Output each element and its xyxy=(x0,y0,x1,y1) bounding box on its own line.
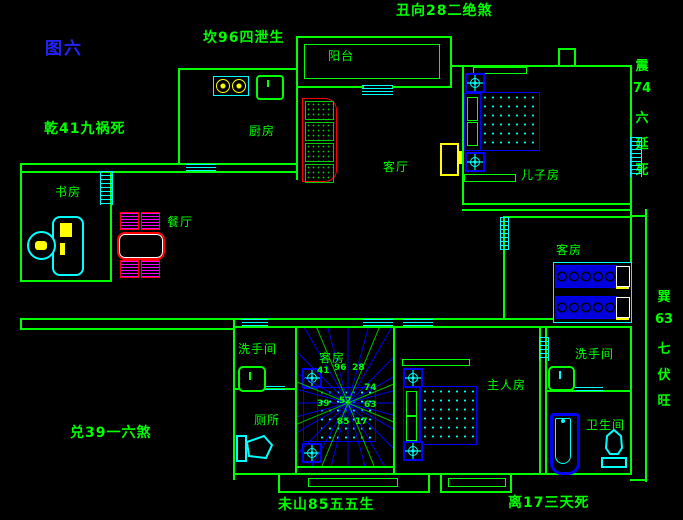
annotation-southwest: 未山85五五生 xyxy=(278,498,374,513)
wall-outer-right-bottom xyxy=(630,479,647,481)
study-desk xyxy=(52,216,84,276)
threshold2-bottom xyxy=(440,491,512,493)
wall-notch-top xyxy=(558,48,576,50)
compass-number: 63 xyxy=(364,401,377,410)
dining-chair xyxy=(141,260,160,278)
room-label-washroom-left: 洗手间 xyxy=(238,343,277,356)
wall-notch-right xyxy=(574,48,576,67)
sofa xyxy=(302,98,337,182)
bathtub-inner xyxy=(555,418,571,464)
window-guest-left xyxy=(500,217,509,250)
sofa-cushion xyxy=(305,122,334,141)
guest-bed-footline xyxy=(616,287,629,289)
guest-bed-pillow xyxy=(616,297,630,318)
kitchen-sink xyxy=(256,75,284,100)
tv-mount xyxy=(457,151,462,164)
room-label-dining: 餐厅 xyxy=(167,216,193,229)
washroom-right-sink xyxy=(548,366,575,391)
wall-guest-top xyxy=(503,216,632,218)
stair-room: 客房 41 96 28 74 39 52 63 85 17 xyxy=(297,328,393,466)
master-bed-pillow xyxy=(406,391,417,416)
bathtub-drain-icon xyxy=(561,419,565,423)
toilet-right-icon xyxy=(598,428,630,472)
compass-number: 17 xyxy=(355,418,368,427)
room-label-toilet-left: 厕所 xyxy=(254,414,280,427)
wall-kitchen-bottom-inner xyxy=(20,171,298,173)
dining-chair xyxy=(120,260,139,278)
stove-burner-icon xyxy=(232,79,246,93)
annotation-northeast: 丑向28二绝煞 xyxy=(396,4,492,19)
desk-monitor-icon xyxy=(60,223,72,237)
room-label-study: 书房 xyxy=(55,186,81,199)
annotation-south: 离17三天死 xyxy=(508,496,589,511)
wall-corridor-left-cap xyxy=(20,318,22,330)
study-chair-seat xyxy=(35,241,47,250)
wall-study-left xyxy=(20,163,22,282)
master-bed-pillow xyxy=(406,416,417,441)
guest-bed-footline xyxy=(616,318,629,320)
wall-kitchen-left xyxy=(178,68,180,165)
sofa-cushion xyxy=(305,143,334,162)
threshold1-step xyxy=(308,478,398,487)
nightstand-lamp-icon xyxy=(403,441,423,461)
stove-burner-icon xyxy=(216,79,230,93)
figure-title: 图六 xyxy=(45,34,83,59)
compass-number: 41 xyxy=(317,367,330,376)
door-master xyxy=(403,319,433,327)
guest-bed-pillow xyxy=(616,266,630,287)
wall-leftwing-left xyxy=(233,318,235,480)
wall-balcony-inner xyxy=(304,44,440,79)
compass-number: 74 xyxy=(364,384,377,393)
threshold2-left xyxy=(440,473,442,491)
room-label-master: 主人房 xyxy=(487,379,526,392)
sons-bed-pillow xyxy=(467,97,478,121)
nightstand-lamp-icon xyxy=(465,73,485,93)
annotation-southeast: 巽 63 七 伏 旺 xyxy=(652,286,676,416)
room-label-kitchen: 厨房 xyxy=(249,125,275,138)
sink-tap-icon xyxy=(267,80,269,87)
door-washroom-left xyxy=(242,319,268,327)
threshold1-left xyxy=(278,473,280,491)
wall-corridor-left-inner xyxy=(20,328,233,330)
window-sons-room xyxy=(630,137,642,177)
toilet-left-icon xyxy=(236,432,276,464)
annotation-north: 坎96四泄生 xyxy=(203,31,284,46)
washroom-left-sink xyxy=(238,366,266,392)
sons-bed-pillow xyxy=(467,122,478,146)
compass-number: 96 xyxy=(334,364,347,373)
wall-balcony-bottom-right xyxy=(392,86,452,88)
wall-outer-right xyxy=(645,209,647,482)
compass-number: 85 xyxy=(337,418,350,427)
threshold1-bottom xyxy=(278,491,430,493)
floor-plan: 图六 坎96四泄生 丑向28二绝煞 乾41九祸死 兑39一六煞 未山85五五生 … xyxy=(0,0,683,520)
sink-tap-icon xyxy=(559,371,561,379)
wall-balcony-bottom-left xyxy=(296,86,364,88)
sofa-cushion xyxy=(305,101,334,120)
wall-stair-bottom xyxy=(297,466,395,468)
wall-sons-bottom-inner xyxy=(462,209,632,211)
annotation-northwest: 乾41九祸死 xyxy=(44,122,125,137)
wall-balcony-right xyxy=(450,36,452,88)
sofa-cushion xyxy=(305,164,334,183)
threshold2-step xyxy=(448,478,506,487)
nightstand-lamp-icon xyxy=(403,368,423,388)
nightstand-lamp-icon xyxy=(465,152,485,172)
sink-tap-icon xyxy=(249,372,251,380)
wall-stair-right xyxy=(393,326,395,473)
stove xyxy=(213,76,249,96)
door-bathroom-right xyxy=(575,387,603,393)
compass-number: 28 xyxy=(352,364,365,373)
window-kitchen xyxy=(186,164,216,173)
room-label-washroom-right: 洗手间 xyxy=(575,348,614,361)
window-rightwing xyxy=(539,337,549,361)
wall-corridor-left-outer xyxy=(20,318,233,320)
door-study xyxy=(100,171,113,205)
wall-kitchen-top xyxy=(178,68,298,70)
bathtub xyxy=(550,413,580,475)
threshold1-right xyxy=(428,473,430,491)
study-chair xyxy=(27,231,56,260)
wall-balcony-top xyxy=(296,36,452,38)
desk-keyboard-icon xyxy=(60,243,65,255)
wall-kitchen-bottom-outer xyxy=(20,163,298,165)
shelf-master xyxy=(402,359,470,366)
wall-notch-left xyxy=(558,48,560,67)
guest-bed xyxy=(555,296,617,319)
annotation-west: 兑39一六煞 xyxy=(70,426,151,441)
compass-number: 52 xyxy=(339,397,352,406)
compass-number: 39 xyxy=(317,400,330,409)
threshold2-right xyxy=(510,473,512,491)
sons-bed-mattress xyxy=(480,92,540,151)
wall-sons-bottom-outer xyxy=(462,203,632,205)
wall-rightwing-right xyxy=(630,326,632,473)
dining-table xyxy=(117,232,165,260)
room-label-living: 客厅 xyxy=(383,161,409,174)
room-label-guest: 客房 xyxy=(556,244,582,257)
guest-bed xyxy=(555,265,617,288)
window-balcony xyxy=(362,85,393,95)
dining-chair xyxy=(141,212,160,230)
door-stair-room xyxy=(363,319,393,327)
dining-chair xyxy=(120,212,139,230)
wall-study-bottom xyxy=(20,280,112,282)
shelf-sons-bottom xyxy=(464,174,516,182)
master-bed-mattress xyxy=(420,386,477,445)
room-label-sons-room: 儿子房 xyxy=(521,169,560,182)
